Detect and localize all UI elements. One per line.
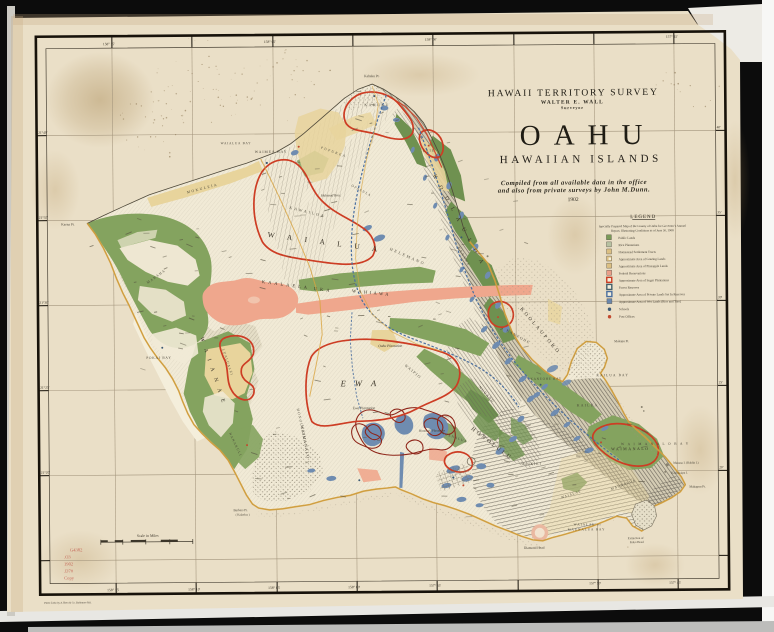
svg-text:158° 15': 158° 15' <box>107 588 119 592</box>
svg-text:Homestead Settlement Tracts: Homestead Settlement Tracts <box>619 250 657 254</box>
svg-text:Federal Reservations: Federal Reservations <box>619 271 647 275</box>
svg-text:Approximate Area of Wet Lands: Approximate Area of Wet Lands (Rice and … <box>619 299 681 303</box>
svg-text:Approximate Area of Pineapple: Approximate Area of Pineapple Lands <box>619 264 669 268</box>
svg-text:HAWAII TERRITORY SURVEY: HAWAII TERRITORY SURVEY <box>488 87 659 99</box>
svg-text:HAWAIIAN ISLANDS: HAWAIIAN ISLANDS <box>500 153 662 166</box>
svg-text:Kahuku Pt.: Kahuku Pt. <box>364 74 379 78</box>
svg-text:157° 55': 157° 55' <box>429 584 441 588</box>
svg-text:Barbers Pt.: Barbers Pt. <box>234 508 248 512</box>
svg-text:E W A: E W A <box>340 378 380 388</box>
svg-text:158° 15': 158° 15' <box>103 42 115 46</box>
svg-text:LAIE: LAIE <box>423 149 435 153</box>
svg-text:Public Lands: Public Lands <box>618 236 636 240</box>
svg-text:Approximate Area of Sugar Plan: Approximate Area of Sugar Plantations <box>619 278 670 282</box>
svg-text:.D7#: .D7# <box>64 568 74 573</box>
svg-text:and also from private surveys: and also from private surveys by John M.… <box>498 186 650 194</box>
svg-text:KAILUA BAY: KAILUA BAY <box>596 373 629 377</box>
svg-text:40': 40' <box>717 125 722 129</box>
svg-text:158° 05': 158° 05' <box>264 40 276 44</box>
svg-text:Oahu Plantation: Oahu Plantation <box>378 344 402 348</box>
svg-text:157° 50': 157° 50' <box>589 581 601 585</box>
svg-text:20': 20' <box>719 465 724 469</box>
svg-text:Ewa Plantation: Ewa Plantation <box>352 406 376 410</box>
svg-text:WAIALUA BAY: WAIALUA BAY <box>221 141 252 145</box>
svg-text:Mokapu Pt.: Mokapu Pt. <box>614 339 629 343</box>
svg-text:MAUNALUA BAY: MAUNALUA BAY <box>568 527 606 531</box>
svg-text:30': 30' <box>718 295 723 299</box>
svg-text:Kaena Pt.: Kaena Pt. <box>61 222 74 226</box>
svg-text:.O3: .O3 <box>64 554 72 559</box>
svg-text:157° 45': 157° 45' <box>666 35 678 39</box>
svg-text:KAILUA: KAILUA <box>577 403 599 407</box>
svg-text:( Kalaeloa ): ( Kalaeloa ) <box>236 513 250 517</box>
svg-text:Koko Head: Koko Head <box>630 540 644 544</box>
svg-text:Photo Litho by A.Hoen & Co. Ba: Photo Litho by A.Hoen & Co. Baltimore Md… <box>44 601 91 604</box>
svg-text:Makapuu Pt.: Makapuu Pt. <box>689 485 706 489</box>
svg-text:WAIMANALO: WAIMANALO <box>611 446 650 451</box>
svg-text:G4382: G4382 <box>70 547 83 552</box>
svg-text:Halstead Bros.: Halstead Bros. <box>320 193 341 197</box>
svg-text:21°35': 21°35' <box>39 216 49 220</box>
svg-text:Approximate Area of Private La: Approximate Area of Private Lands Set In… <box>619 292 686 297</box>
svg-text:158° 05': 158° 05' <box>268 586 280 590</box>
svg-text:21°30': 21°30' <box>39 301 49 305</box>
svg-text:21°40': 21°40' <box>38 131 48 135</box>
svg-text:158° 10': 158° 10' <box>188 587 200 591</box>
svg-text:157° 45': 157° 45' <box>669 581 681 585</box>
svg-text:Kaohikaipu I.: Kaohikaipu I. <box>671 471 688 475</box>
svg-text:WAIALAE or: WAIALAE or <box>574 522 602 526</box>
svg-text:Copy: Copy <box>64 575 75 580</box>
svg-text:Diamond Head: Diamond Head <box>524 546 545 550</box>
svg-text:OAHU: OAHU <box>520 119 656 152</box>
svg-text:158° 00': 158° 00' <box>425 38 437 42</box>
svg-text:21°25': 21°25' <box>40 386 50 390</box>
svg-text:WAIKIKI: WAIKIKI <box>521 462 542 466</box>
svg-text:POKAI BAY: POKAI BAY <box>146 356 171 360</box>
svg-text:1902: 1902 <box>64 561 74 566</box>
svg-text:Approximate Area of Grazing La: Approximate Area of Grazing Lands <box>619 257 667 261</box>
svg-text:W A I M A N A L O B A Y: W A I M A N A L O B A Y <box>621 442 690 447</box>
svg-text:Forest Reserves: Forest Reserves <box>619 286 640 290</box>
svg-text:Scale in Miles: Scale in Miles <box>137 534 159 538</box>
svg-text:Manana I. (Rabbit I.): Manana I. (Rabbit I.) <box>673 461 698 465</box>
svg-text:158° 00': 158° 00' <box>348 585 360 589</box>
svg-text:KANEOHE BAY: KANEOHE BAY <box>531 377 562 381</box>
svg-text:25': 25' <box>719 380 724 384</box>
svg-text:35': 35' <box>717 210 722 214</box>
svg-text:Surveyor: Surveyor <box>561 105 584 110</box>
svg-text:Rice Plantations: Rice Plantations <box>618 243 640 247</box>
svg-text:Post Offices: Post Offices <box>619 315 635 319</box>
svg-text:KAHUKU: KAHUKU <box>364 103 389 107</box>
svg-text:1902: 1902 <box>568 197 579 203</box>
svg-text:21°20': 21°20' <box>41 471 51 475</box>
svg-text:Schools: Schools <box>619 307 630 311</box>
svg-text:WAIMEA BAY: WAIMEA BAY <box>255 150 288 154</box>
